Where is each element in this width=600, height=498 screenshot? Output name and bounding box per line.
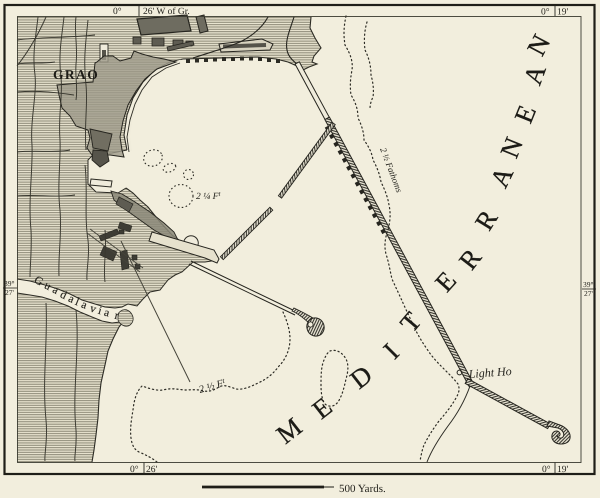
svg-text:0°: 0°: [542, 465, 551, 475]
svg-text:39°: 39°: [4, 279, 15, 288]
svg-text:500 Yards.: 500 Yards.: [339, 483, 386, 495]
svg-text:0°: 0°: [541, 8, 550, 18]
svg-text:39°: 39°: [583, 280, 594, 289]
svg-text:0°: 0°: [113, 7, 122, 17]
svg-text:GRAO: GRAO: [53, 67, 99, 82]
svg-text:27': 27': [5, 288, 15, 297]
svg-text:26': 26': [146, 465, 158, 475]
svg-text:19': 19': [557, 8, 569, 18]
svg-text:19': 19': [557, 465, 569, 475]
svg-text:0°: 0°: [130, 465, 139, 475]
svg-text:27': 27': [584, 289, 594, 298]
svg-text:26' W of Gr.: 26' W of Gr.: [143, 7, 190, 17]
svg-text:2 ¼ Ft: 2 ¼ Ft: [196, 190, 221, 202]
